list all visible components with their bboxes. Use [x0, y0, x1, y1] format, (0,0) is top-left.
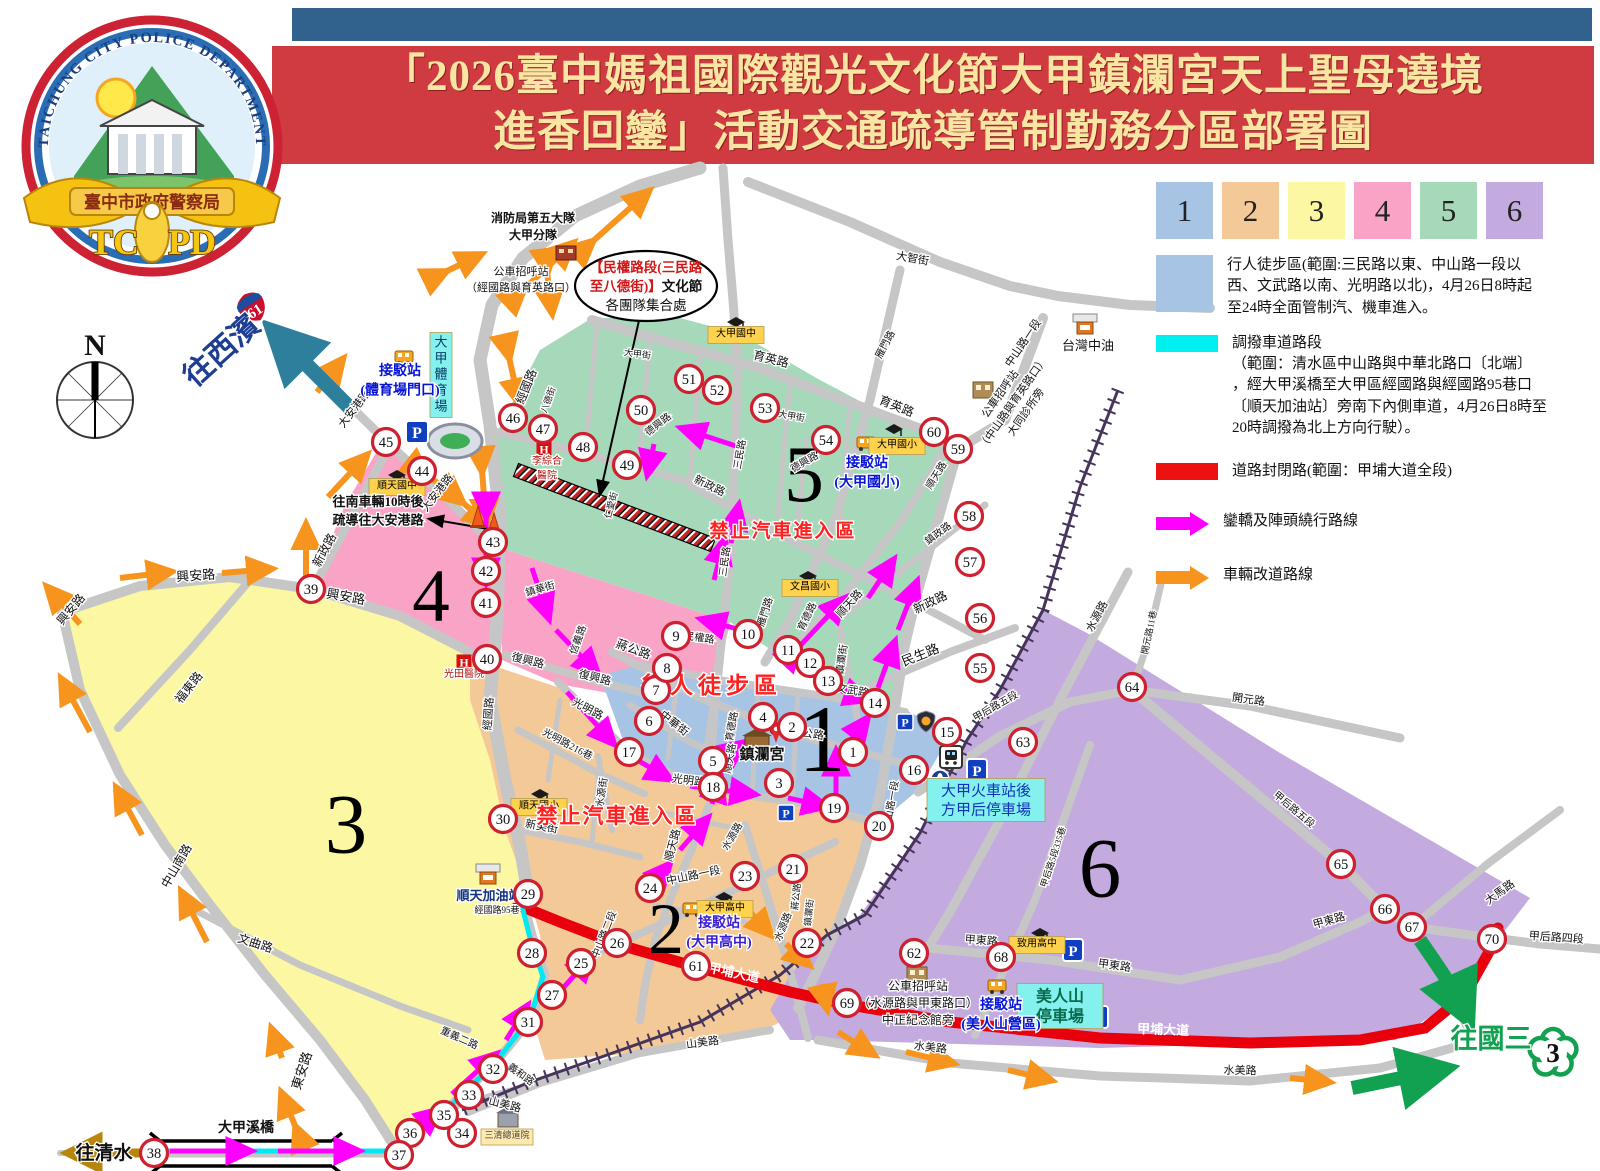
svg-text:大甲溪橋: 大甲溪橋 [218, 1119, 275, 1136]
svg-text:(美人山營區): (美人山營區) [961, 1016, 1041, 1033]
svg-text:57: 57 [963, 555, 978, 571]
checkpoint-53: 53 [752, 395, 779, 422]
checkpoint-4: 4 [750, 704, 777, 731]
road-label: 東安路 [289, 1050, 315, 1092]
svg-text:27: 27 [545, 988, 560, 1004]
svg-text:P: P [782, 807, 789, 821]
svg-text:（經國路與育英路口）: （經國路與育英路口） [466, 280, 576, 294]
to-xibin-arrow [276, 334, 352, 410]
zone-number-6: 6 [1079, 822, 1122, 916]
svg-text:35: 35 [437, 1108, 452, 1124]
svg-text:40: 40 [480, 652, 495, 668]
svg-text:經國路95巷: 經國路95巷 [474, 904, 519, 915]
checkpoint-26: 26 [604, 930, 631, 957]
svg-text:15: 15 [940, 725, 955, 741]
svg-text:63: 63 [1016, 735, 1031, 751]
svg-text:68: 68 [994, 950, 1009, 966]
checkpoint-39: 39 [298, 576, 325, 603]
svg-text:李綜合: 李綜合 [532, 454, 562, 467]
svg-text:54: 54 [819, 433, 834, 449]
compass [57, 362, 133, 438]
svg-text:H: H [539, 443, 549, 457]
logo-tc: TC [89, 222, 139, 262]
svg-text:9: 9 [672, 629, 679, 645]
checkpoint-55: 55 [967, 655, 994, 682]
svg-text:14: 14 [868, 696, 883, 712]
svg-text:至八德街)】文化節: 至八德街)】文化節 [590, 278, 703, 294]
svg-text:往國三: 往國三 [1451, 1023, 1532, 1054]
legend-text-4: 車輛改道路線 [1223, 565, 1313, 586]
legend-zone-3: 3 [1288, 182, 1345, 239]
checkpoint-63: 63 [1010, 729, 1037, 756]
checkpoint-5: 5 [700, 748, 727, 775]
svg-text:36: 36 [403, 1126, 418, 1142]
svg-text:義和路: 義和路 [505, 1060, 537, 1088]
checkpoint-9: 9 [663, 623, 690, 650]
svg-text:(體育場門口): (體育場門口) [360, 382, 440, 399]
svg-text:接駁站: 接駁站 [846, 454, 888, 471]
road-label: 水美路 [1223, 1064, 1256, 1078]
checkpoint-61: 61 [683, 953, 710, 980]
checkpoint-3: 3 [766, 770, 793, 797]
checkpoint-33: 33 [456, 1082, 483, 1109]
map-label: 台灣中油 [1062, 338, 1114, 353]
legend-item-0: 行人徒步區(範圍:三民路以東、中山路一段以西、文武路以南、光明路以北)，4月26… [1156, 255, 1594, 319]
svg-text:大甲高中: 大甲高中 [705, 901, 745, 914]
legend: 123456行人徒步區(範圍:三民路以東、中山路一段以西、文武路以南、光明路以北… [1156, 182, 1594, 619]
svg-text:2: 2 [788, 720, 795, 736]
checkpoint-22: 22 [794, 930, 821, 957]
zone-number-3: 3 [325, 778, 368, 872]
checkpoint-2: 2 [779, 714, 806, 741]
svg-text:大甲分隊: 大甲分隊 [509, 227, 558, 242]
svg-text:三清總道院: 三清總道院 [484, 1129, 529, 1140]
train-station-icon [940, 746, 962, 768]
checkpoint-15: 15 [934, 719, 961, 746]
svg-text:65: 65 [1334, 857, 1349, 873]
checkpoint-44: 44 [409, 458, 436, 485]
checkpoint-28: 28 [519, 940, 546, 967]
facility-box: 致用高中 [1009, 937, 1065, 954]
svg-text:美人山: 美人山 [1036, 987, 1084, 1006]
svg-text:61: 61 [689, 959, 704, 975]
svg-text:21: 21 [786, 862, 801, 878]
legend-swatch-1 [1156, 335, 1218, 352]
svg-text:接駁站: 接駁站 [698, 914, 740, 931]
svg-text:62: 62 [907, 946, 922, 962]
map-canvas: 「2026臺中媽祖國際觀光文化節大甲鎮瀾宮天上聖母遶境 進香回鑾」活動交通疏導管… [0, 0, 1600, 1171]
svg-text:31: 31 [521, 1015, 536, 1031]
svg-text:11: 11 [781, 643, 795, 659]
svg-text:往南車輛10時後: 往南車輛10時後 [332, 494, 424, 509]
road-label: 興安路 [176, 567, 216, 585]
checkpoint-27: 27 [539, 982, 566, 1009]
checkpoint-8: 8 [654, 655, 681, 682]
svg-text:10: 10 [741, 627, 756, 643]
checkpoint-45: 45 [373, 429, 400, 456]
svg-text:H: H [459, 656, 469, 670]
legend-item-3: 鑾轎及陣頭繞行路線 [1156, 511, 1594, 537]
checkpoint-70: 70 [1479, 926, 1506, 953]
assembly-callout: 【民權路段(三民路 至八德街)】文化節 各團隊集合處 [575, 251, 717, 321]
freeway-3-shield: 3 [1530, 1029, 1577, 1075]
map-label: 鎮瀾宮 [739, 745, 784, 763]
svg-text:4: 4 [759, 710, 767, 726]
svg-text:大甲國中: 大甲國中 [716, 327, 756, 340]
svg-text:禁止汽車進入區: 禁止汽車進入區 [537, 804, 698, 828]
checkpoint-69: 69 [834, 990, 861, 1017]
svg-text:47: 47 [536, 422, 551, 438]
legend-item-1: 調撥車道路段（範圍：清水區中山路與中華北路口〔北端〕，經大甲溪橋至大甲區經國路與… [1156, 333, 1594, 439]
road-label: 義和路 [505, 1060, 537, 1088]
svg-text:文昌國小: 文昌國小 [790, 580, 830, 593]
svg-text:20: 20 [872, 819, 887, 835]
map-label: 往國三 [1451, 1023, 1532, 1054]
svg-text:38: 38 [147, 1146, 162, 1162]
svg-text:53: 53 [758, 401, 773, 417]
legend-zone-6: 6 [1486, 182, 1543, 239]
checkpoint-30: 30 [490, 806, 517, 833]
svg-text:順天加油站: 順天加油站 [456, 888, 521, 903]
legend-swatch-0 [1156, 255, 1213, 312]
police-logo: TAICHUNG CITY POLICE DEPARTMENT 臺中市政府警察局… [14, 6, 290, 292]
svg-text:【民權路段(三民路: 【民權路段(三民路 [590, 259, 703, 275]
svg-text:13: 13 [821, 674, 836, 690]
svg-text:30: 30 [496, 812, 511, 828]
checkpoint-20: 20 [866, 813, 893, 840]
svg-text:48: 48 [576, 440, 591, 456]
svg-text:5: 5 [709, 754, 716, 770]
svg-text:興安路: 興安路 [176, 567, 216, 585]
checkpoint-31: 31 [515, 1009, 542, 1036]
checkpoint-59: 59 [945, 436, 972, 463]
checkpoint-48: 48 [570, 434, 597, 461]
map-label: 往清水 [75, 1141, 133, 1164]
fire-station-icon [556, 246, 576, 260]
legend-text-3: 鑾轎及陣頭繞行路線 [1223, 511, 1358, 532]
map-label: 公車招呼站（經國路與育英路口） [466, 264, 576, 294]
svg-text:49: 49 [620, 458, 635, 474]
svg-text:公車招呼站: 公車招呼站 [888, 979, 948, 993]
checkpoint-17: 17 [616, 739, 643, 766]
svg-text:醫院: 醫院 [537, 469, 557, 482]
map-label: N [84, 329, 106, 362]
svg-text:N: N [84, 329, 106, 362]
svg-text:接駁站: 接駁站 [980, 996, 1022, 1013]
svg-text:39: 39 [304, 582, 319, 598]
svg-text:鎮瀾宮: 鎮瀾宮 [739, 745, 784, 763]
svg-text:19: 19 [827, 801, 842, 817]
legend-zone-row: 123456 [1156, 182, 1594, 239]
svg-text:停車場: 停車場 [1036, 1007, 1084, 1026]
svg-text:往西濱: 往西濱 [177, 309, 266, 394]
svg-text:17: 17 [622, 745, 637, 761]
svg-text:1: 1 [849, 745, 856, 761]
checkpoint-10: 10 [735, 621, 762, 648]
svg-text:41: 41 [479, 596, 494, 612]
legend-text-2: 道路封閉路(範圍：甲埔大道全段) [1232, 461, 1452, 482]
svg-text:各團隊集合處: 各團隊集合處 [606, 298, 687, 313]
checkpoint-32: 32 [480, 1056, 507, 1083]
checkpoint-65: 65 [1328, 851, 1355, 878]
svg-text:56: 56 [973, 611, 988, 627]
svg-text:P: P [972, 764, 981, 780]
svg-text:29: 29 [521, 887, 536, 903]
svg-text:23: 23 [738, 869, 753, 885]
facility-box: 大甲高中 [697, 901, 753, 918]
svg-text:12: 12 [803, 656, 818, 672]
legend-item-4: 車輛改道路線 [1156, 565, 1594, 591]
checkpoint-51: 51 [676, 366, 703, 393]
svg-text:28: 28 [525, 946, 540, 962]
svg-text:3: 3 [1546, 1038, 1560, 1068]
checkpoint-38: 38 [141, 1140, 168, 1167]
checkpoint-23: 23 [732, 863, 759, 890]
map-label: 禁止汽車進入區 [537, 804, 698, 828]
svg-text:大: 大 [434, 335, 447, 350]
svg-text:接駁站: 接駁站 [379, 362, 421, 379]
svg-text:66: 66 [1378, 902, 1393, 918]
road-label: 甲埔大道 [1137, 1021, 1190, 1038]
svg-text:禁止汽車進入區: 禁止汽車進入區 [709, 519, 856, 542]
map-label: 接駁站(體育場門口) [360, 362, 440, 399]
checkpoint-35: 35 [431, 1102, 458, 1129]
svg-text:致用高中: 致用高中 [1017, 937, 1057, 950]
checkpoint-1: 1 [840, 739, 867, 766]
svg-text:42: 42 [479, 564, 494, 580]
svg-text:59: 59 [951, 442, 966, 458]
checkpoint-24: 24 [637, 875, 664, 902]
facility-box: 大甲火車站後方甲后停車場 [927, 779, 1045, 822]
facility-box: 文昌國小 [782, 580, 838, 597]
svg-text:6: 6 [645, 714, 652, 730]
checkpoint-54: 54 [813, 427, 840, 454]
stadium-icon [428, 424, 482, 458]
checkpoint-18: 18 [700, 774, 727, 801]
legend-swatch-3 [1156, 511, 1209, 537]
legend-zone-2: 2 [1222, 182, 1279, 239]
legend-zone-1: 1 [1156, 182, 1213, 239]
svg-text:33: 33 [462, 1088, 477, 1104]
checkpoint-37: 37 [386, 1142, 413, 1169]
svg-text:8: 8 [663, 661, 670, 677]
checkpoint-47: 47 [530, 416, 557, 443]
map-label: 經國路95巷 [474, 904, 519, 915]
svg-text:37: 37 [392, 1148, 407, 1164]
facility-box: 三清總道院 [481, 1129, 533, 1145]
checkpoint-68: 68 [988, 944, 1015, 971]
svg-text:69: 69 [840, 996, 855, 1012]
svg-text:7: 7 [652, 683, 659, 699]
svg-text:大甲火車站後: 大甲火車站後 [941, 783, 1031, 800]
checkpoint-13: 13 [815, 668, 842, 695]
svg-text:16: 16 [907, 763, 922, 779]
svg-text:70: 70 [1485, 932, 1500, 948]
map-label: 順天加油站 [456, 888, 521, 903]
map-label: 大甲溪橋 [218, 1119, 275, 1136]
checkpoint-67: 67 [1399, 914, 1426, 941]
road-label: 雁門路 [872, 328, 898, 361]
checkpoint-49: 49 [614, 452, 641, 479]
svg-text:32: 32 [486, 1062, 501, 1078]
svg-text:43: 43 [486, 535, 501, 551]
facility-box: 大甲國中 [708, 327, 764, 344]
facility-box: 大甲體育場 [430, 333, 452, 418]
svg-text:3: 3 [775, 776, 782, 792]
svg-text:甲: 甲 [434, 351, 447, 366]
checkpoint-52: 52 [704, 377, 731, 404]
svg-text:P: P [1068, 944, 1077, 960]
legend-text-0: 行人徒步區(範圍:三民路以東、中山路一段以西、文武路以南、光明路以北)，4月26… [1227, 255, 1532, 319]
checkpoint-14: 14 [862, 690, 889, 717]
checkpoint-57: 57 [957, 549, 984, 576]
svg-text:公車招呼站: 公車招呼站 [494, 264, 549, 278]
legend-item-2: 道路封閉路(範圍：甲埔大道全段) [1156, 461, 1594, 482]
legend-swatch-4 [1156, 565, 1209, 591]
svg-text:52: 52 [710, 383, 725, 399]
svg-text:50: 50 [634, 403, 649, 419]
svg-text:34: 34 [455, 1126, 470, 1142]
svg-text:（水源路與甲東路口）: （水源路與甲東路口） [858, 995, 978, 1010]
legend-zone-4: 4 [1354, 182, 1411, 239]
checkpoint-43: 43 [480, 529, 507, 556]
legend-swatch-2 [1156, 463, 1218, 480]
hospital-icon-kuangtien: H [457, 655, 472, 670]
logo-pd: PD [168, 222, 216, 262]
svg-text:東安路: 東安路 [289, 1050, 315, 1092]
checkpoint-41: 41 [473, 590, 500, 617]
svg-text:台灣中油: 台灣中油 [1062, 338, 1114, 353]
legend-zone-5: 5 [1420, 182, 1477, 239]
svg-text:水美路: 水美路 [1223, 1064, 1256, 1078]
checkpoint-6: 6 [636, 708, 663, 735]
svg-text:疏導往大安港路: 疏導往大安港路 [332, 512, 424, 527]
svg-text:體: 體 [434, 367, 447, 382]
svg-text:雁門路: 雁門路 [872, 328, 898, 361]
zone-number-4: 4 [412, 555, 450, 638]
svg-text:甲埔大道: 甲埔大道 [1137, 1021, 1190, 1038]
svg-text:P: P [412, 425, 422, 442]
svg-text:26: 26 [610, 936, 625, 952]
svg-text:方甲后停車場: 方甲后停車場 [941, 802, 1031, 819]
svg-text:46: 46 [506, 411, 521, 427]
svg-text:60: 60 [927, 425, 942, 441]
svg-text:45: 45 [379, 435, 394, 451]
svg-text:22: 22 [800, 936, 815, 952]
checkpoint-62: 62 [901, 940, 928, 967]
checkpoint-40: 40 [474, 646, 501, 673]
checkpoint-42: 42 [473, 558, 500, 585]
svg-text:67: 67 [1405, 920, 1420, 936]
svg-text:大甲國小: 大甲國小 [877, 438, 917, 451]
svg-text:往清水: 往清水 [75, 1141, 133, 1164]
checkpoint-50: 50 [628, 397, 655, 424]
svg-text:55: 55 [973, 661, 988, 677]
svg-text:64: 64 [1125, 680, 1140, 696]
svg-text:(大甲國小): (大甲國小) [834, 474, 900, 491]
checkpoint-58: 58 [956, 503, 983, 530]
svg-text:44: 44 [415, 464, 430, 480]
map-label: 往西濱 [177, 309, 266, 394]
svg-text:51: 51 [682, 372, 697, 388]
checkpoint-56: 56 [967, 605, 994, 632]
svg-text:場: 場 [434, 399, 447, 414]
svg-text:58: 58 [962, 509, 977, 525]
svg-text:中正紀念館旁: 中正紀念館旁 [882, 1012, 954, 1027]
checkpoint-64: 64 [1119, 674, 1146, 701]
svg-text:18: 18 [706, 780, 721, 796]
svg-text:消防局第五大隊: 消防局第五大隊 [491, 210, 576, 225]
facility-box: 大甲國小 [869, 438, 925, 455]
legend-text-1: 調撥車道路段（範圍：清水區中山路與中華北路口〔北端〕，經大甲溪橋至大甲區經國路與… [1232, 333, 1547, 439]
checkpoint-46: 46 [500, 405, 527, 432]
checkpoint-60: 60 [921, 419, 948, 446]
checkpoint-21: 21 [780, 856, 807, 883]
svg-text:25: 25 [574, 956, 589, 972]
map-label: 禁止汽車進入區 [709, 519, 856, 542]
checkpoint-66: 66 [1372, 896, 1399, 923]
checkpoint-16: 16 [901, 757, 928, 784]
checkpoint-19: 19 [821, 795, 848, 822]
svg-text:24: 24 [643, 881, 658, 897]
checkpoint-29: 29 [515, 881, 542, 908]
svg-text:P: P [901, 716, 908, 730]
svg-text:(大甲高中): (大甲高中) [686, 934, 752, 951]
checkpoint-25: 25 [568, 950, 595, 977]
